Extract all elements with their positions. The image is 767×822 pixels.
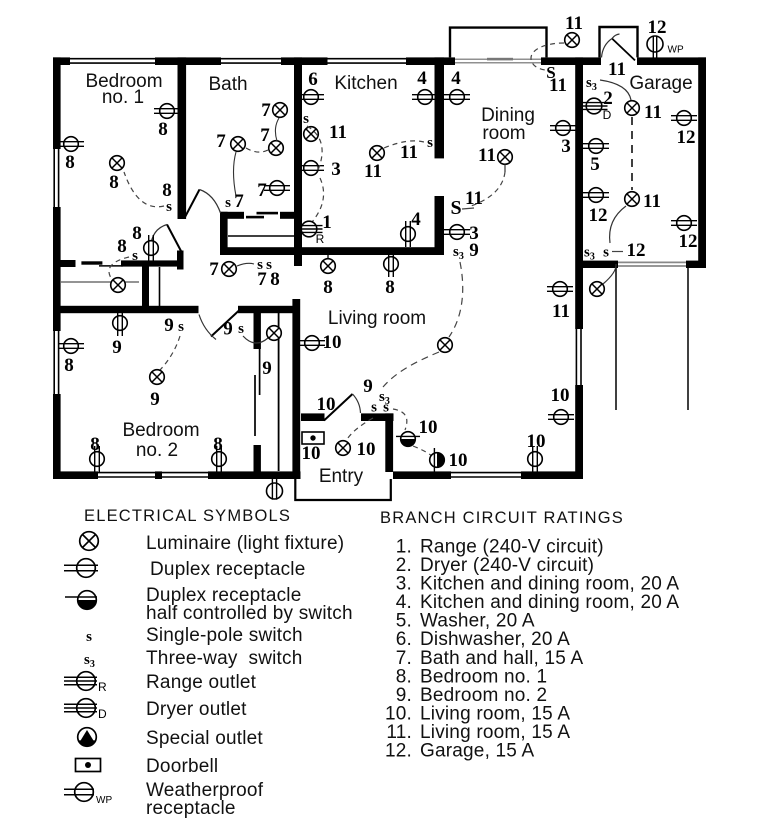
svg-text:8: 8 — [162, 180, 172, 201]
svg-text:1: 1 — [322, 212, 332, 233]
svg-text:6: 6 — [308, 69, 318, 90]
svg-text:8: 8 — [90, 434, 100, 455]
svg-text:11: 11 — [329, 122, 347, 143]
svg-text:12: 12 — [677, 127, 696, 148]
svg-text:Entry: Entry — [319, 466, 364, 487]
svg-text:11: 11 — [643, 191, 661, 212]
svg-text:Range outlet: Range outlet — [146, 672, 257, 693]
svg-text:8: 8 — [132, 223, 142, 244]
svg-text:8: 8 — [65, 152, 75, 173]
svg-text:7: 7 — [216, 131, 226, 152]
svg-text:s: s — [178, 319, 184, 335]
svg-text:8: 8 — [117, 236, 127, 257]
svg-text:Special outlet: Special outlet — [146, 728, 263, 749]
svg-text:Living room: Living room — [328, 308, 426, 329]
svg-text:9: 9 — [150, 389, 160, 410]
svg-text:12: 12 — [679, 231, 698, 252]
svg-text:8: 8 — [158, 119, 168, 140]
svg-text:4: 4 — [411, 209, 421, 230]
svg-text:4: 4 — [417, 68, 427, 89]
svg-text:11: 11 — [608, 59, 626, 80]
svg-text:11: 11 — [478, 145, 496, 166]
svg-text:11: 11 — [549, 75, 567, 96]
svg-text:11: 11 — [465, 188, 483, 209]
svg-text:8: 8 — [64, 355, 74, 376]
svg-text:R: R — [98, 680, 107, 694]
svg-text:7: 7 — [260, 125, 270, 146]
svg-text:4: 4 — [451, 68, 461, 89]
svg-text:12: 12 — [589, 205, 608, 226]
svg-text:9: 9 — [469, 240, 479, 261]
svg-text:WP: WP — [96, 795, 112, 806]
svg-text:11: 11 — [644, 102, 662, 123]
svg-text:room: room — [482, 123, 525, 144]
svg-text:s: s — [132, 248, 138, 264]
svg-text:7: 7 — [257, 269, 267, 290]
svg-text:9: 9 — [363, 376, 373, 397]
svg-text:R: R — [316, 232, 325, 246]
svg-text:7: 7 — [209, 259, 219, 280]
svg-text:Bath: Bath — [208, 74, 247, 95]
svg-text:Three-way switch: Three-way switch — [146, 648, 303, 669]
svg-text:2: 2 — [603, 88, 613, 109]
svg-text:Bedroom: Bedroom — [122, 420, 199, 441]
svg-text:Single-pole switch: Single-pole switch — [146, 625, 303, 646]
svg-text:10: 10 — [527, 431, 546, 452]
svg-text:s: s — [427, 135, 433, 151]
svg-text:11: 11 — [364, 161, 382, 182]
svg-text:7: 7 — [234, 191, 244, 212]
svg-text:s: s — [166, 199, 172, 215]
svg-text:8: 8 — [270, 269, 280, 290]
svg-text:7: 7 — [257, 180, 267, 201]
svg-text:WP: WP — [668, 45, 684, 56]
svg-text:8: 8 — [109, 172, 119, 193]
svg-text:Dryer outlet: Dryer outlet — [146, 699, 247, 720]
svg-text:9: 9 — [262, 358, 272, 379]
svg-text:Garage, 15 A: Garage, 15 A — [420, 741, 534, 762]
svg-text:s: s — [86, 629, 92, 645]
svg-text:8: 8 — [385, 277, 395, 298]
svg-text:10: 10 — [317, 394, 336, 415]
svg-text:10: 10 — [302, 443, 321, 464]
svg-text:Kitchen: Kitchen — [334, 73, 397, 94]
svg-text:s: s — [303, 111, 309, 127]
svg-text:9: 9 — [223, 319, 233, 340]
svg-text:9: 9 — [112, 337, 122, 358]
svg-text:Luminaire (light fixture): Luminaire (light fixture) — [146, 533, 344, 554]
svg-text:12: 12 — [627, 240, 646, 261]
svg-text:10: 10 — [449, 450, 468, 471]
svg-text:10: 10 — [551, 385, 570, 406]
svg-text:12.: 12. — [385, 741, 412, 762]
svg-text:11: 11 — [565, 13, 583, 34]
svg-text:5: 5 — [590, 154, 600, 175]
svg-text:10: 10 — [357, 439, 376, 460]
svg-text:D: D — [98, 707, 107, 721]
svg-text:no. 1: no. 1 — [102, 87, 144, 108]
svg-text:S: S — [450, 197, 461, 219]
svg-text:8: 8 — [213, 434, 223, 455]
svg-text:no. 2: no. 2 — [136, 440, 178, 461]
svg-text:receptacle: receptacle — [146, 798, 236, 819]
svg-text:s: s — [238, 321, 244, 337]
svg-text:Doorbell: Doorbell — [146, 756, 218, 777]
svg-text:s: s — [603, 245, 609, 261]
svg-text:ELECTRICAL SYMBOLS: ELECTRICAL SYMBOLS — [84, 507, 291, 525]
svg-text:half controlled by switch: half controlled by switch — [146, 603, 353, 624]
svg-text:12: 12 — [648, 17, 667, 38]
svg-text:s: s — [383, 400, 389, 416]
svg-text:7: 7 — [261, 100, 271, 121]
svg-text:10: 10 — [419, 417, 438, 438]
svg-text:3: 3 — [331, 159, 341, 180]
svg-text:Duplex receptacle: Duplex receptacle — [150, 559, 305, 580]
svg-text:9: 9 — [164, 315, 174, 336]
svg-text:10: 10 — [323, 332, 342, 353]
svg-text:11: 11 — [552, 301, 570, 322]
svg-text:11: 11 — [400, 142, 418, 163]
svg-text:D: D — [603, 108, 612, 122]
svg-text:s: s — [225, 195, 231, 211]
svg-text:8: 8 — [323, 277, 333, 298]
svg-text:Garage: Garage — [629, 73, 692, 94]
svg-text:BRANCH CIRCUIT RATINGS: BRANCH CIRCUIT RATINGS — [380, 509, 624, 527]
svg-text:3: 3 — [561, 136, 571, 157]
svg-text:s: s — [371, 400, 377, 416]
